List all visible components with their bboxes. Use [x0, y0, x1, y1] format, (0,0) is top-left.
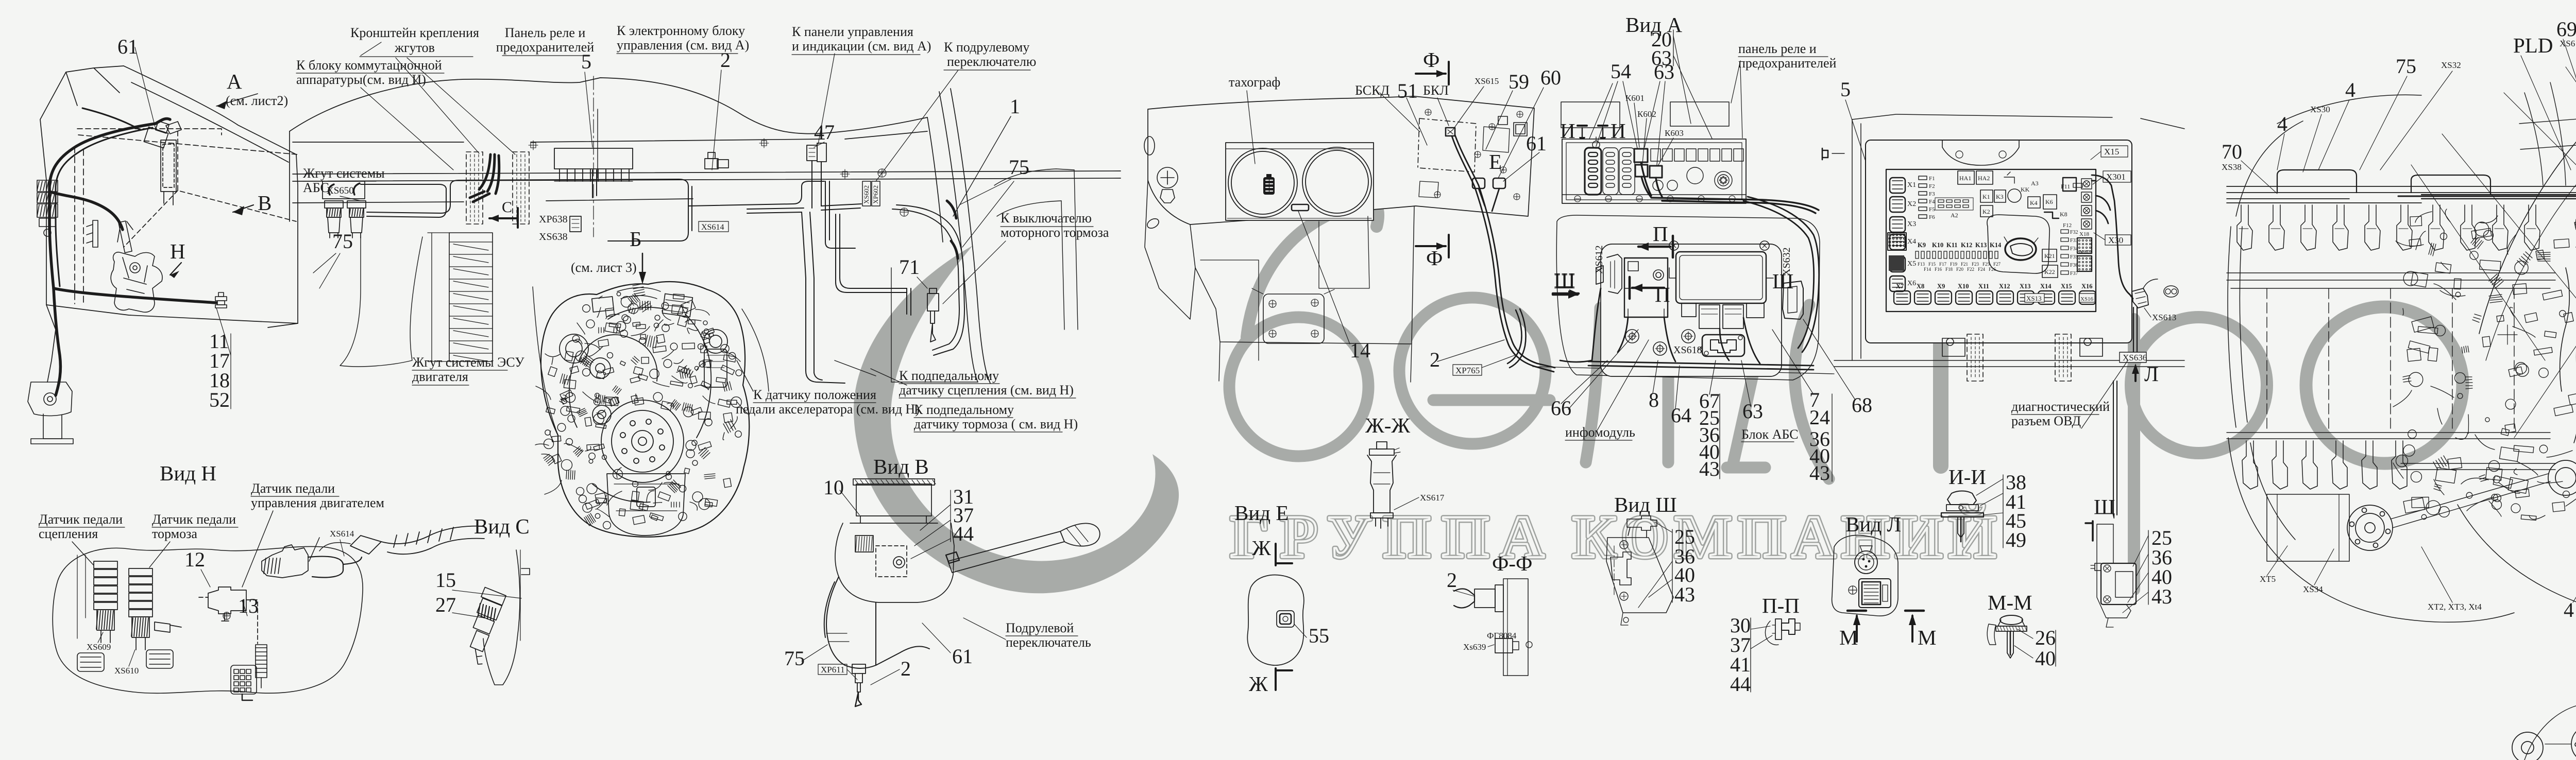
svg-text:X8: X8	[1917, 283, 1924, 290]
svg-text:5: 5	[581, 50, 591, 73]
svg-text:70: 70	[2222, 140, 2242, 163]
svg-text:Ш: Ш	[1554, 268, 1575, 292]
svg-text:датчику сцепления (см. вид Н): датчику сцепления (см. вид Н)	[899, 383, 1074, 398]
svg-text:K13: K13	[1975, 241, 1987, 249]
svg-text:F4: F4	[1929, 199, 1935, 205]
svg-text:Жгут системы: Жгут системы	[303, 166, 385, 181]
svg-text:X14: X14	[2040, 283, 2052, 290]
svg-text:K3: K3	[1996, 193, 2004, 200]
svg-text:24: 24	[1809, 406, 1830, 429]
svg-text:F14: F14	[1924, 267, 1931, 272]
svg-text:Е: Е	[1489, 150, 1502, 174]
svg-text:Вид Ш: Вид Ш	[1614, 493, 1677, 516]
svg-text:43: 43	[1674, 583, 1695, 606]
svg-text:5: 5	[1840, 78, 1851, 101]
svg-text:PLD: PLD	[2513, 33, 2553, 57]
svg-text:59: 59	[1509, 70, 1529, 93]
svg-text:40: 40	[2035, 647, 2056, 670]
svg-text:К панели управления: К панели управления	[792, 24, 913, 39]
svg-text:47: 47	[814, 120, 835, 144]
svg-text:А: А	[227, 70, 242, 93]
svg-text:Ф: Ф	[1423, 48, 1439, 72]
svg-text:X5: X5	[1907, 260, 1916, 268]
svg-text:К603: К603	[1665, 128, 1684, 138]
svg-text:Ф: Ф	[1426, 246, 1443, 270]
svg-text:49: 49	[2006, 528, 2026, 551]
svg-text:Панель реле и: Панель реле и	[505, 25, 586, 40]
svg-text:F2: F2	[1929, 183, 1935, 189]
svg-text:F3: F3	[1929, 191, 1935, 197]
svg-text:K8: K8	[2060, 211, 2067, 218]
svg-text:2: 2	[1447, 568, 1457, 592]
svg-text:П-П: П-П	[1762, 594, 1800, 617]
svg-text:10: 10	[823, 476, 844, 499]
svg-text:X1: X1	[1907, 181, 1916, 189]
svg-text:М: М	[1918, 626, 1936, 649]
svg-text:66: 66	[1551, 396, 1571, 420]
svg-text:XS614: XS614	[330, 529, 354, 539]
svg-text:К электронному блоку: К электронному блоку	[617, 23, 745, 38]
svg-text:XP602: XP602	[872, 185, 879, 204]
svg-text:XS613: XS613	[2152, 313, 2176, 322]
svg-text:K21: K21	[2044, 252, 2055, 260]
svg-text:М-М: М-М	[1988, 591, 2032, 614]
svg-text:Датчик педали: Датчик педали	[39, 512, 123, 527]
svg-text:XS13: XS13	[2026, 295, 2042, 302]
svg-text:14: 14	[1350, 339, 1370, 362]
svg-text:X2: X2	[1907, 200, 1916, 208]
svg-text:педали акселератора (см. вид Н: педали акселератора (см. вид Н)	[736, 402, 920, 417]
svg-text:И-И: И-И	[1948, 465, 1986, 489]
svg-text:XS30: XS30	[2310, 105, 2330, 114]
svg-text:XS32: XS32	[2441, 60, 2461, 70]
svg-text:разъем ОВД: разъем ОВД	[2011, 413, 2081, 428]
svg-text:12: 12	[184, 548, 205, 571]
svg-text:F6: F6	[1929, 214, 1935, 220]
svg-text:44: 44	[953, 522, 974, 545]
svg-text:HA1: HA1	[1959, 175, 1971, 182]
svg-text:Датчик педали: Датчик педали	[251, 481, 335, 496]
svg-text:43: 43	[2151, 585, 2172, 608]
svg-text:XS612: XS612	[1594, 245, 1605, 274]
svg-text:F32: F32	[2070, 230, 2078, 235]
svg-text:К602: К602	[1637, 109, 1656, 119]
svg-text:XS636: XS636	[2123, 353, 2147, 362]
svg-text:F22: F22	[1967, 267, 1974, 272]
svg-text:2: 2	[720, 48, 731, 72]
svg-text:75: 75	[2396, 55, 2416, 78]
svg-text:XT5: XT5	[2260, 574, 2276, 584]
svg-text:Вид Н: Вид Н	[160, 461, 216, 485]
svg-text:44: 44	[1730, 672, 1751, 696]
svg-text:X6: X6	[1907, 280, 1916, 287]
svg-text:БСКД: БСКД	[1355, 83, 1389, 98]
svg-text:68: 68	[1852, 393, 1872, 417]
svg-text:61: 61	[117, 35, 138, 58]
svg-text:55: 55	[1309, 624, 1329, 647]
svg-text:2: 2	[901, 657, 911, 680]
svg-text:Вид Л: Вид Л	[1845, 512, 1901, 536]
svg-text:Кронштейн крепления: Кронштейн крепления	[350, 25, 479, 40]
svg-text:KK: KK	[2021, 186, 2030, 193]
svg-text:Ф-Ф: Ф-Ф	[1492, 551, 1532, 575]
svg-text:X3: X3	[1907, 220, 1916, 228]
svg-text:61: 61	[1526, 132, 1547, 155]
svg-text:54: 54	[1611, 60, 1631, 83]
svg-text:63: 63	[1742, 400, 1763, 423]
svg-text:75: 75	[784, 647, 805, 670]
svg-text:XT2, XT3, Xt4: XT2, XT3, Xt4	[2428, 602, 2482, 612]
svg-text:Вид С: Вид С	[474, 514, 530, 538]
svg-text:X13: X13	[2020, 283, 2031, 290]
svg-text:Ш: Ш	[1772, 269, 1793, 293]
svg-text:XS34: XS34	[2303, 584, 2323, 594]
svg-text:75: 75	[1009, 156, 1029, 179]
svg-text:K1: K1	[1982, 193, 1990, 200]
svg-text:(см. лист 3): (см. лист 3)	[571, 260, 637, 275]
svg-text:F1: F1	[1929, 176, 1935, 182]
svg-text:51: 51	[1397, 79, 1418, 102]
svg-text:F15: F15	[1928, 262, 1936, 267]
svg-text:F23: F23	[1972, 262, 1979, 267]
svg-text:K12: K12	[1961, 241, 1972, 249]
svg-text:С: С	[502, 199, 512, 216]
svg-text:X7: X7	[1896, 283, 1904, 290]
svg-text:XS16: XS16	[2080, 296, 2094, 302]
svg-text:ФГ8084: ФГ8084	[1487, 631, 1517, 641]
svg-text:управления двигателем: управления двигателем	[251, 495, 384, 510]
svg-text:F27: F27	[1993, 262, 2001, 267]
svg-text:1: 1	[1010, 95, 1020, 118]
svg-text:8: 8	[1649, 388, 1659, 411]
svg-text:K22: K22	[2044, 268, 2055, 275]
svg-text:X301: X301	[2106, 172, 2126, 182]
svg-text:63: 63	[1654, 60, 1674, 83]
svg-text:Xs639: Xs639	[1463, 642, 1486, 652]
svg-text:15: 15	[435, 568, 456, 592]
svg-text:Блок АБС: Блок АБС	[1741, 427, 1799, 442]
svg-text:XS602: XS602	[862, 185, 870, 204]
svg-text:A3: A3	[2031, 180, 2039, 187]
svg-text:жгутов: жгутов	[394, 40, 435, 55]
svg-text:Щ: Щ	[2094, 495, 2115, 519]
svg-text:датчику тормоза ( см. вид Н): датчику тормоза ( см. вид Н)	[914, 417, 1078, 431]
svg-text:предохранителей: предохранителей	[496, 40, 594, 55]
svg-text:переключатель: переключатель	[1006, 635, 1091, 650]
svg-text:K10: K10	[1932, 241, 1943, 249]
svg-text:К блоку коммутационной: К блоку коммутационной	[296, 58, 442, 73]
svg-text:и индикации (см. вид А): и индикации (см. вид А)	[792, 39, 931, 54]
svg-text:X15: X15	[2061, 283, 2072, 290]
svg-text:XP611: XP611	[821, 665, 845, 675]
svg-text:Ж: Ж	[1249, 672, 1268, 696]
svg-text:X16: X16	[2081, 283, 2093, 290]
svg-text:аппаратуры(см. вид И): аппаратуры(см. вид И)	[296, 72, 426, 87]
svg-text:XS6: XS6	[2560, 39, 2575, 48]
svg-text:М: М	[1839, 626, 1858, 649]
svg-text:Н: Н	[170, 239, 185, 263]
svg-text:F17: F17	[1939, 262, 1947, 267]
svg-text:К подпедальному: К подпедальному	[914, 402, 1014, 417]
svg-text:Вид В: Вид В	[873, 455, 929, 478]
svg-text:X10: X10	[1958, 283, 1969, 290]
svg-text:43: 43	[1699, 457, 1720, 480]
svg-text:X15: X15	[2104, 147, 2119, 157]
svg-text:XS617: XS617	[1420, 493, 1445, 503]
svg-text:69: 69	[2556, 18, 2576, 41]
svg-text:K11: K11	[1946, 241, 1958, 249]
svg-text:A2: A2	[1951, 212, 1958, 219]
svg-text:Жгут системы ЭСУ: Жгут системы ЭСУ	[412, 355, 524, 370]
svg-text:13: 13	[238, 594, 259, 617]
svg-text:Подрулевой: Подрулевой	[1006, 620, 1074, 635]
svg-text:F19: F19	[1950, 262, 1958, 267]
svg-text:XS614: XS614	[701, 223, 724, 232]
svg-text:XP638: XP638	[539, 214, 568, 225]
svg-text:П: П	[1655, 283, 1670, 306]
svg-text:АБС: АБС	[303, 180, 329, 195]
svg-text:XS638: XS638	[539, 231, 568, 243]
svg-text:F11: F11	[2061, 183, 2070, 190]
svg-text:64: 64	[1671, 404, 1691, 427]
svg-text:4: 4	[2345, 78, 2355, 101]
svg-text:сцепления: сцепления	[39, 526, 98, 541]
svg-text:F18: F18	[1945, 267, 1953, 272]
svg-text:Ж: Ж	[1252, 536, 1271, 560]
svg-text:K4: K4	[2030, 199, 2038, 206]
svg-text:К подрулевому: К подрулевому	[944, 40, 1029, 55]
svg-text:F21: F21	[1961, 262, 1968, 267]
svg-text:F5: F5	[1929, 206, 1935, 213]
svg-text:X11: X11	[1978, 283, 1989, 290]
svg-text:X12: X12	[1999, 283, 2010, 290]
svg-text:K2: K2	[1982, 208, 1990, 215]
svg-text:43: 43	[1809, 461, 1830, 485]
svg-text:X17: X17	[2079, 249, 2089, 255]
svg-text:2: 2	[1430, 348, 1440, 371]
svg-text:тахограф: тахограф	[1229, 75, 1280, 90]
svg-text:В: В	[258, 191, 272, 215]
svg-text:Датчик педали: Датчик педали	[152, 512, 236, 527]
svg-text:К601: К601	[1625, 93, 1645, 103]
svg-text:F16: F16	[1935, 267, 1942, 272]
svg-text:F20: F20	[1956, 267, 1964, 272]
svg-text:XS609: XS609	[87, 642, 111, 652]
svg-text:75: 75	[332, 230, 353, 253]
svg-text:K6: K6	[2045, 198, 2053, 205]
svg-text:X18: X18	[2079, 231, 2089, 237]
svg-text:4: 4	[2564, 598, 2574, 621]
svg-text:диагностический: диагностический	[2011, 399, 2110, 414]
svg-text:XP765: XP765	[1455, 366, 1480, 375]
svg-text:панель реле и: панель реле и	[1738, 41, 1817, 56]
svg-text:П: П	[1653, 222, 1668, 246]
svg-text:К датчику положения: К датчику положения	[753, 387, 876, 402]
svg-text:моторного тормоза: моторного тормоза	[1001, 225, 1109, 240]
svg-text:4: 4	[2277, 112, 2287, 135]
svg-text:F13: F13	[1918, 262, 1925, 267]
svg-text:БКЛ: БКЛ	[1423, 83, 1449, 98]
svg-text:X4: X4	[1907, 238, 1916, 246]
svg-text:26: 26	[2035, 626, 2056, 649]
svg-text:K9: K9	[1918, 241, 1926, 249]
svg-text:61: 61	[952, 645, 973, 668]
svg-text:52: 52	[209, 388, 230, 411]
svg-text:X30: X30	[2108, 235, 2123, 245]
svg-text:двигателя: двигателя	[412, 369, 468, 384]
svg-text:инфомодуль: инфомодуль	[1565, 425, 1635, 440]
svg-text:Ж-Ж: Ж-Ж	[1365, 413, 1410, 437]
svg-text:XS610: XS610	[114, 666, 139, 676]
svg-text:тормоза: тормоза	[152, 526, 197, 541]
svg-text:F12: F12	[2063, 222, 2072, 229]
svg-text:Л: Л	[2144, 362, 2159, 386]
svg-text:XS615: XS615	[1475, 76, 1499, 86]
svg-text:F24: F24	[1978, 267, 1986, 272]
svg-text:71: 71	[899, 255, 920, 279]
svg-text:переключателю: переключателю	[947, 54, 1036, 69]
svg-text:Б: Б	[630, 227, 642, 251]
svg-text:К подпедальному: К подпедальному	[899, 368, 999, 383]
svg-text:K14: K14	[1990, 241, 2002, 249]
svg-text:60: 60	[1540, 66, 1561, 89]
svg-text:XS38: XS38	[2222, 162, 2242, 172]
svg-text:X9: X9	[1937, 283, 1945, 290]
svg-text:HA2: HA2	[1978, 175, 1990, 182]
svg-text:К выключателю: К выключателю	[1001, 211, 1092, 226]
svg-text:Вид Е: Вид Е	[1234, 501, 1289, 525]
svg-text:предохранителей: предохранителей	[1738, 56, 1836, 71]
